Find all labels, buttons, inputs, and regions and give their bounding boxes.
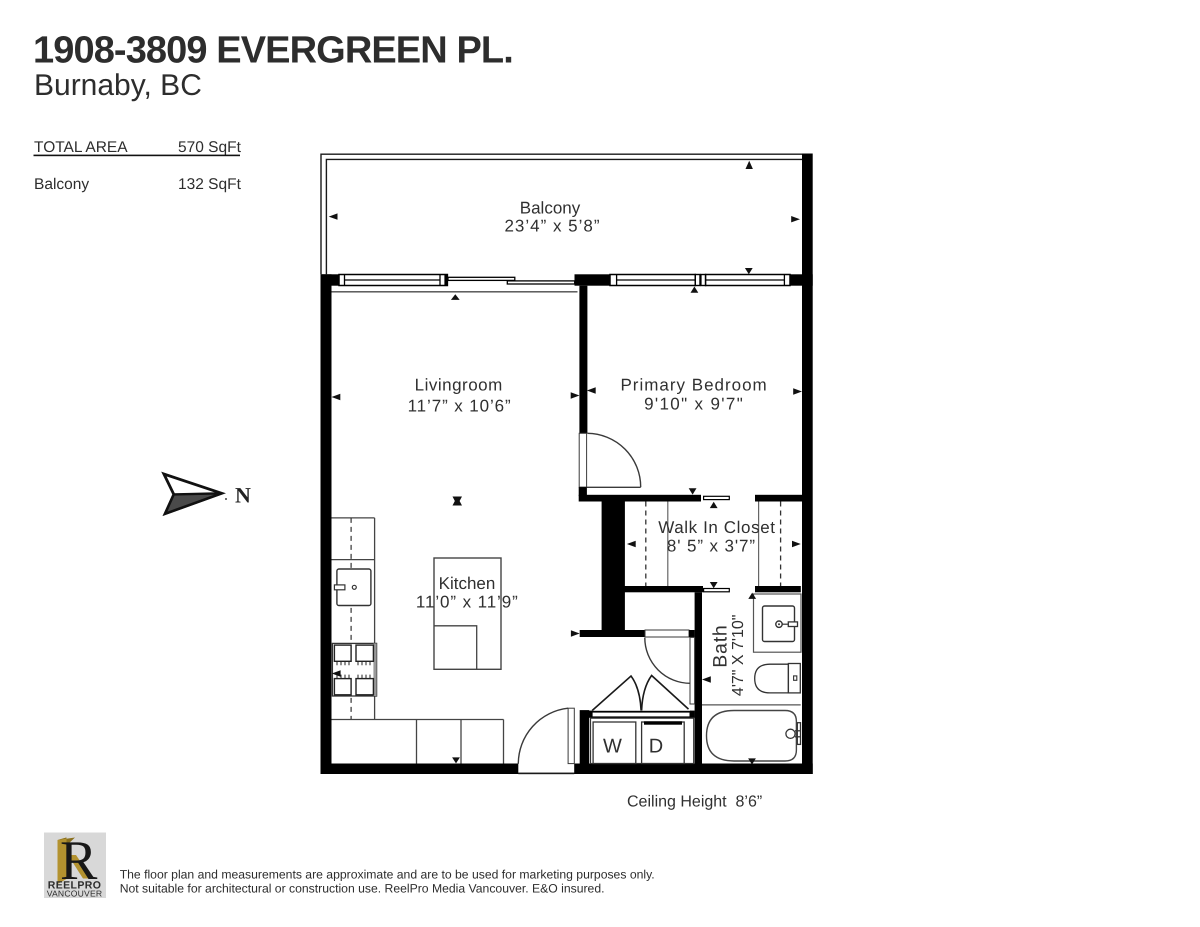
svg-text:Ceiling Height 8’6”: Ceiling Height 8’6” <box>627 794 762 811</box>
svg-text:Primary Bedroom: Primary Bedroom <box>620 376 767 395</box>
svg-text:N: N <box>235 483 251 508</box>
svg-text:1908-3809 EVERGREEN PL.: 1908-3809 EVERGREEN PL. <box>33 30 513 72</box>
svg-text:Walk In Closet: Walk In Closet <box>658 518 775 537</box>
svg-text:570 SqFt: 570 SqFt <box>178 139 242 156</box>
svg-text:Balcony: Balcony <box>520 199 581 218</box>
svg-text:11’7” x 10’6”: 11’7” x 10’6” <box>408 397 512 416</box>
svg-text:D: D <box>649 736 663 758</box>
svg-text:4'7" X 7'10": 4'7" X 7'10" <box>730 615 747 697</box>
svg-text:W: W <box>603 736 622 758</box>
svg-text:9'10" x 9'7": 9'10" x 9'7" <box>644 395 744 414</box>
svg-text:Not suitable for architectural: Not suitable for architectural or constr… <box>120 881 605 895</box>
svg-text:The floor plan and measurement: The floor plan and measurements are appr… <box>120 868 655 882</box>
svg-text:Balcony: Balcony <box>34 176 89 193</box>
svg-text:11’0” x 11’9”: 11’0” x 11’9” <box>416 593 519 612</box>
svg-text:VANCOUVER: VANCOUVER <box>47 889 103 899</box>
svg-text:Livingroom: Livingroom <box>415 376 503 395</box>
svg-text:8' 5” x 3'7”: 8' 5” x 3'7” <box>667 537 756 556</box>
svg-text:Bath: Bath <box>709 624 731 667</box>
svg-text:Kitchen: Kitchen <box>439 574 496 593</box>
svg-text:132 SqFt: 132 SqFt <box>178 176 242 193</box>
svg-text:23’4” x 5’8”: 23’4” x 5’8” <box>504 217 600 236</box>
svg-text:Burnaby, BC: Burnaby, BC <box>34 69 202 102</box>
svg-text:TOTAL AREA: TOTAL AREA <box>34 139 128 156</box>
